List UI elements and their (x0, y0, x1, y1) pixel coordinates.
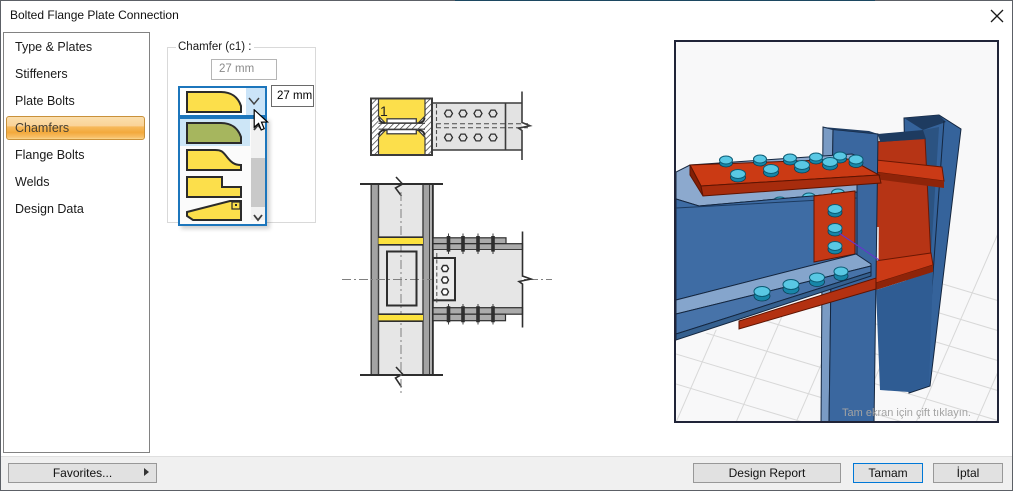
svg-text:1: 1 (380, 103, 388, 119)
svg-text:Tam ekran için çift tıklayın.: Tam ekran için çift tıklayın. (842, 407, 971, 419)
